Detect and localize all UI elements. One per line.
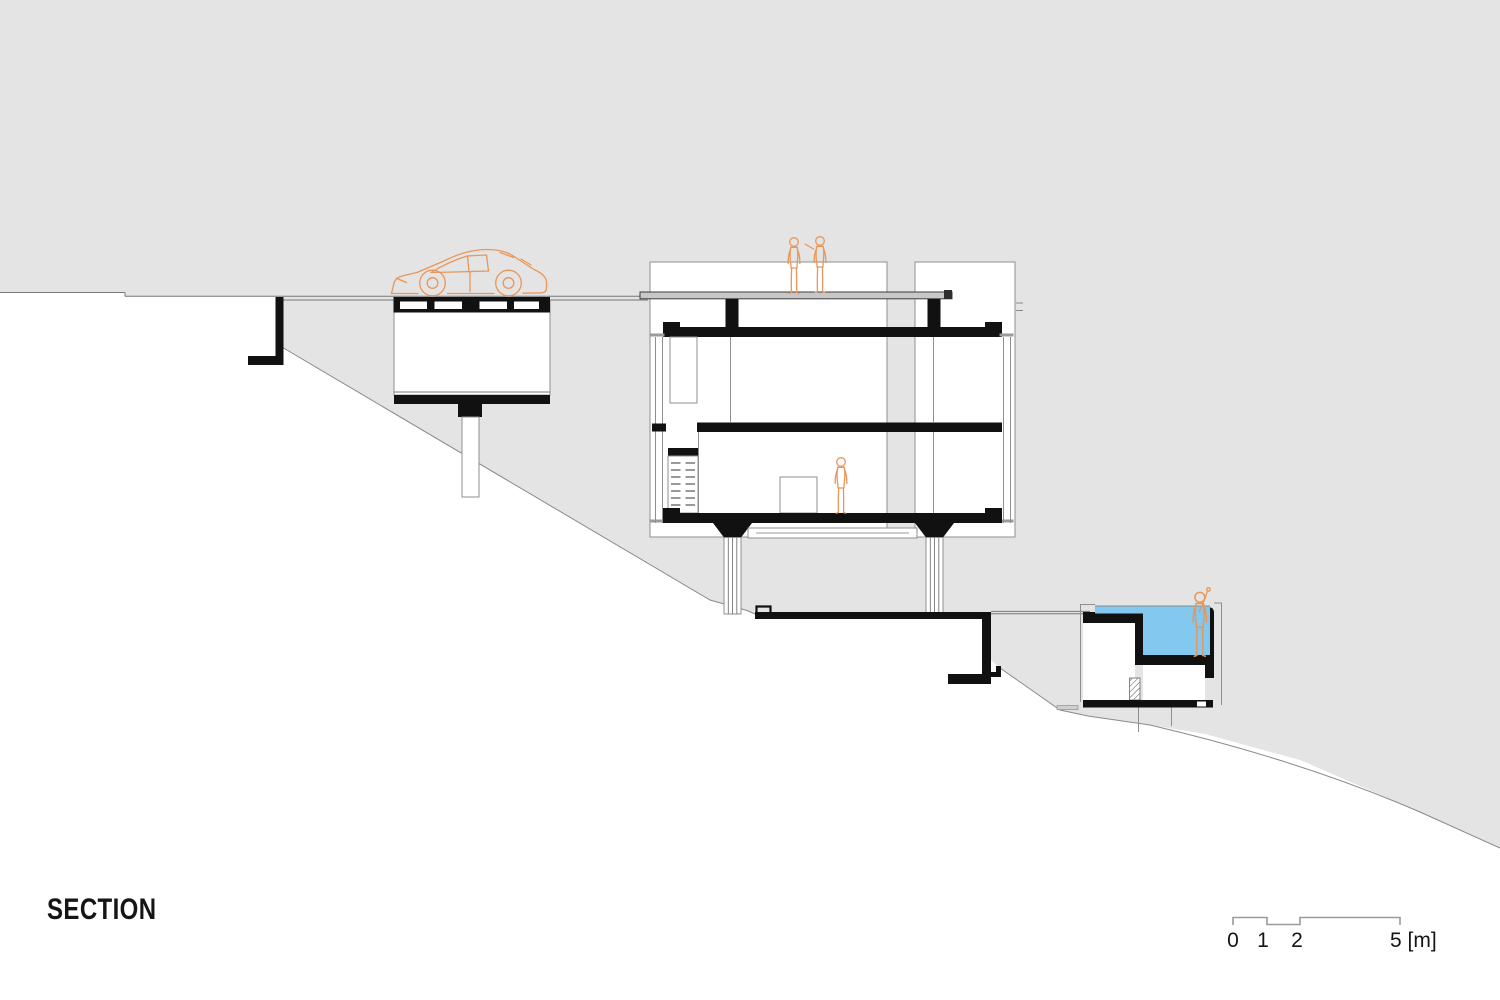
cutout-voids [650, 262, 1015, 537]
garage-column-capital [458, 404, 482, 417]
scale-tick-5m: 5 [m] [1390, 929, 1437, 953]
roof-stub-column-right [928, 299, 941, 328]
scale-tick-0: 0 [1221, 929, 1245, 953]
ground-floor-slab [663, 513, 1002, 523]
piloti-left [724, 538, 741, 615]
scale-tick-2: 2 [1285, 929, 1309, 953]
scale-tick-1: 1 [1251, 929, 1275, 953]
pool-room-upper [1083, 623, 1135, 700]
pool-house-base-slab [1083, 700, 1213, 708]
interior-box [780, 477, 817, 513]
upper-retaining-wall [248, 297, 284, 365]
hatched-wall [1130, 678, 1141, 700]
roof-slab [663, 327, 1002, 337]
section-drawing: SECTION 0 1 2 5 [m] [0, 0, 1500, 1000]
drawing-svg [0, 0, 1500, 1000]
garage-floor-slab [394, 395, 550, 404]
garage-room [394, 300, 550, 395]
pool-floor [1135, 655, 1214, 665]
piloti-right [926, 538, 943, 615]
pool-room-lower [1143, 665, 1205, 700]
slope-step [1057, 706, 1078, 710]
lower-retaining-wall [982, 612, 991, 678]
base-slab-joint [1197, 702, 1206, 707]
scale-bar [1233, 918, 1400, 926]
lower-terrace [755, 607, 1001, 685]
terrace-slab [755, 612, 991, 619]
upper-cupboard [670, 337, 697, 403]
roof-stub-column-left [726, 299, 739, 328]
drawing-title: SECTION [47, 893, 156, 927]
mid-floor-slab [697, 423, 1002, 433]
louvered-unit [668, 448, 698, 513]
garage-column [462, 417, 479, 497]
suspended-walkway [748, 528, 917, 538]
